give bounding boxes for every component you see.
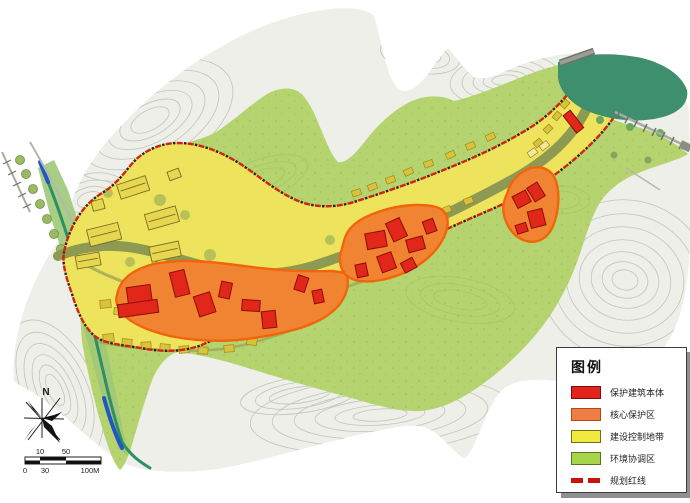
- legend-label: 核心保护区: [610, 408, 655, 421]
- legend-swatch-core-protection: [571, 408, 601, 421]
- legend-item-core-protection: 核心保护区: [571, 408, 686, 421]
- legend-item-protected-building: 保护建筑本体: [571, 386, 686, 399]
- legend-title: 图例: [571, 357, 686, 377]
- legend-swatch-protected-building: [571, 386, 601, 399]
- legend-item-construction-control: 建设控制地带: [571, 430, 686, 443]
- scale-label-30: 30: [41, 466, 49, 475]
- legend-swatch-planning-red-line: [571, 478, 601, 483]
- legend: 图例 保护建筑本体 核心保护区 建设控制地带 环境协调区 规划红线: [556, 347, 687, 493]
- scale-label-0: 0: [23, 466, 27, 475]
- legend-item-environment-coordination: 环境协调区: [571, 452, 686, 465]
- planning-map-page: N 10 50 0 30 100M 图例 保护建筑本体 核心保护区 建设控制地带…: [0, 0, 690, 503]
- red-dash: [588, 478, 600, 483]
- legend-label: 规划红线: [610, 474, 646, 487]
- legend-item-planning-red-line: 规划红线: [571, 474, 686, 487]
- legend-label: 环境协调区: [610, 452, 655, 465]
- red-dash: [571, 478, 583, 483]
- scale-label-10: 10: [36, 447, 44, 456]
- legend-swatch-construction-control: [571, 430, 601, 443]
- scale-bar: 10 50 0 30 100M: [23, 447, 101, 475]
- legend-label: 建设控制地带: [610, 430, 664, 443]
- legend-swatch-environment-coordination: [571, 452, 601, 465]
- scale-label-50: 50: [62, 447, 70, 456]
- compass-north-label: N: [42, 387, 49, 398]
- legend-label: 保护建筑本体: [610, 386, 664, 399]
- scale-label-100m: 100M: [81, 466, 100, 475]
